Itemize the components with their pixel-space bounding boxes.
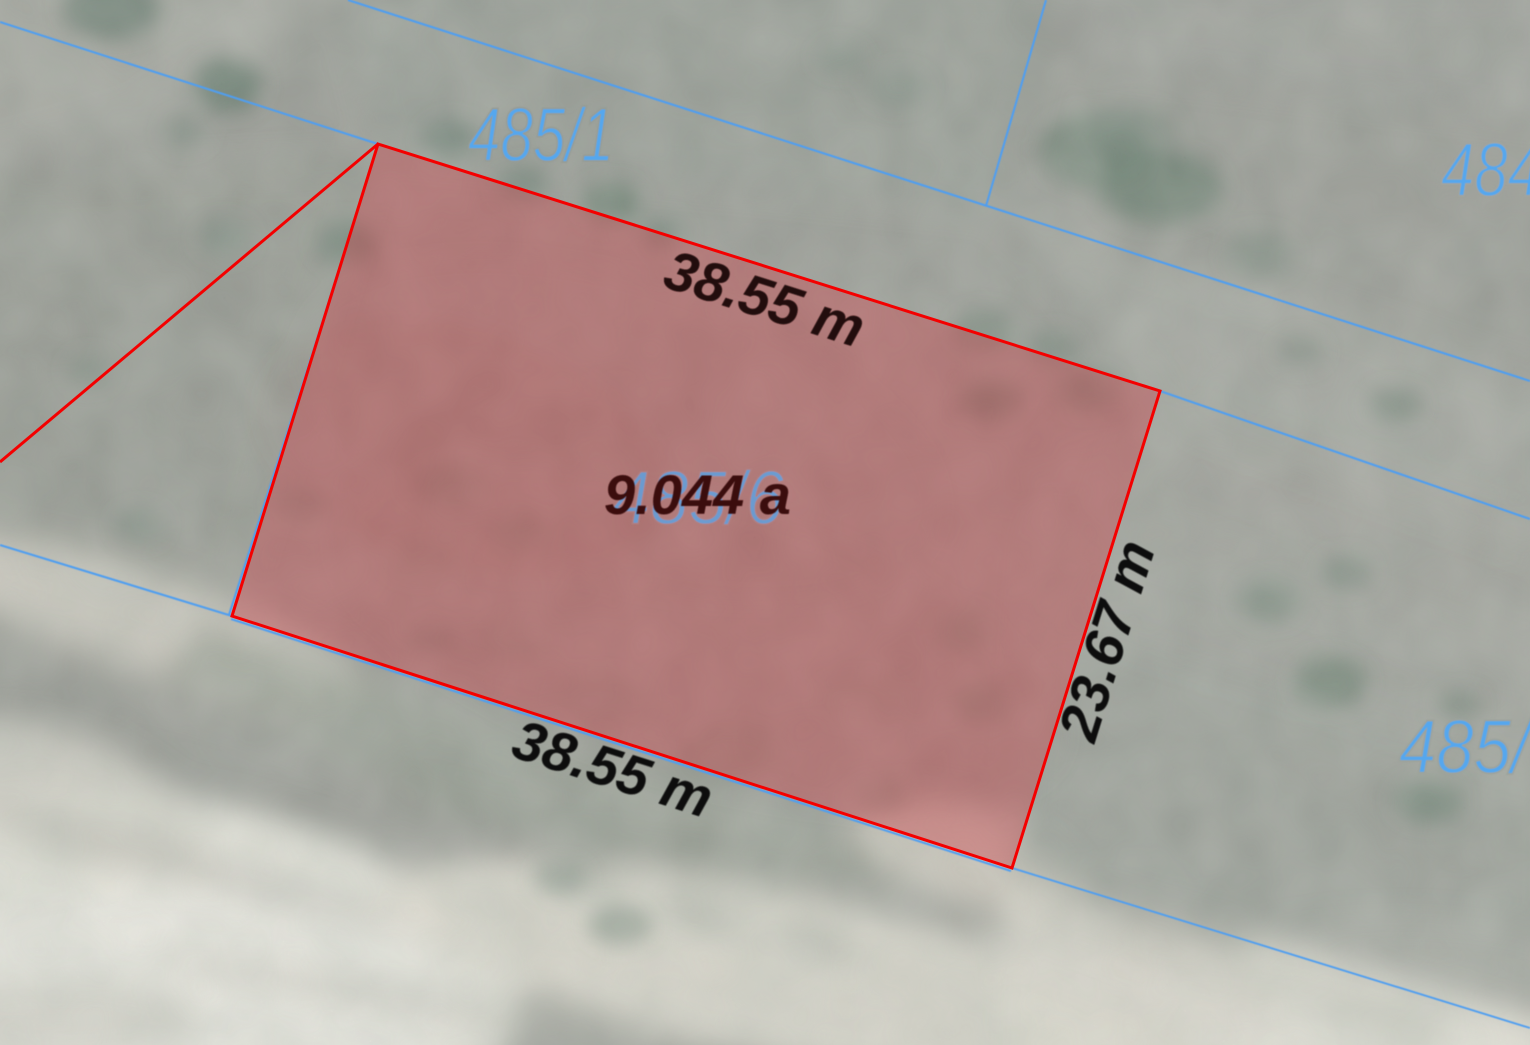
- svg-text:485/7: 485/7: [1399, 705, 1530, 790]
- svg-text:485/1: 485/1: [468, 93, 614, 178]
- svg-text:9.044 a: 9.044 a: [604, 463, 791, 526]
- svg-text:484: 484: [1441, 128, 1530, 213]
